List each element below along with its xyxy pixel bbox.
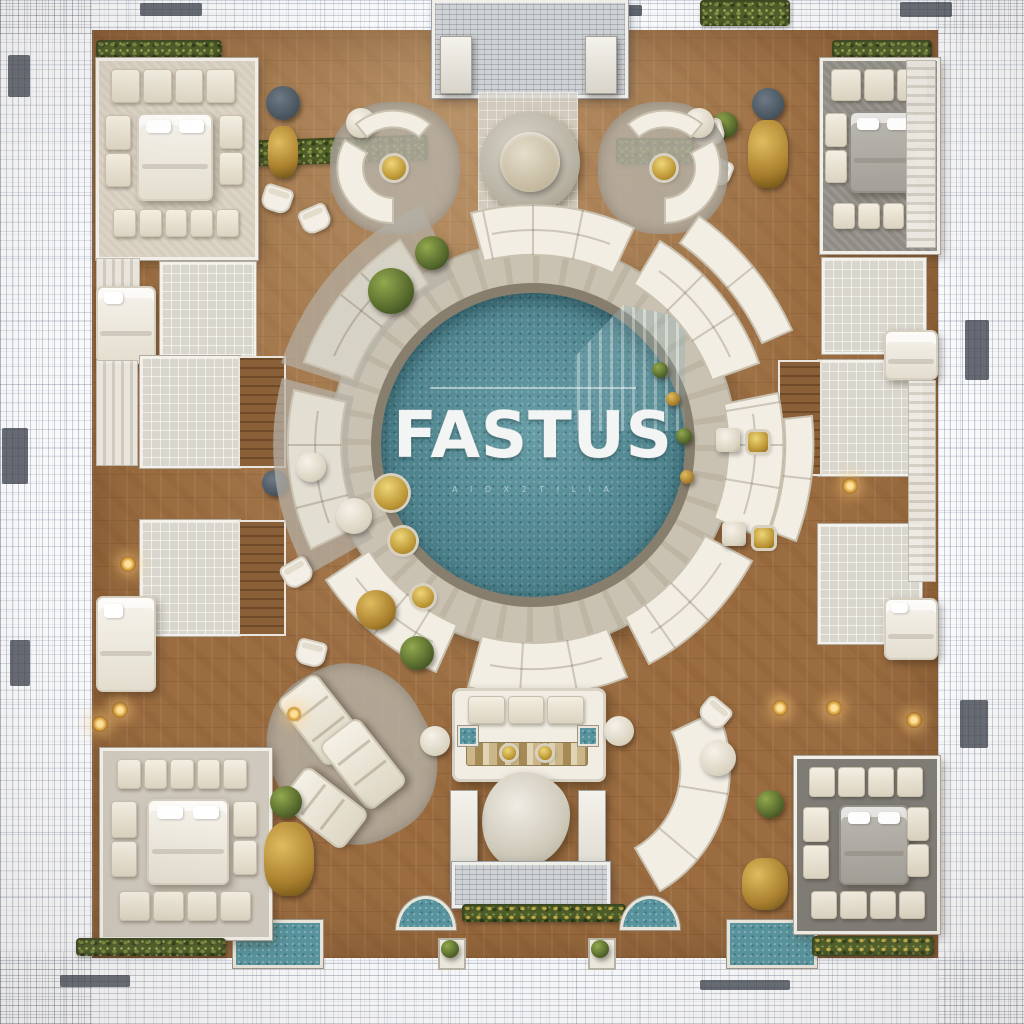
warm-lamp [826,700,842,716]
round-side-table [684,108,714,138]
sofa-row [111,69,235,103]
amber-plant [742,858,788,910]
sketch-mark [900,2,952,17]
planter-shrub [441,940,459,958]
sketch-mark [965,320,989,380]
round-side-table [604,716,634,746]
sofa-column [907,807,929,877]
gold-drink-tray [390,528,416,554]
ottoman [296,452,326,482]
portico-pillar [440,36,472,94]
bathroom-top-left [160,262,256,358]
sofa-row [113,209,239,237]
side-table-gold [748,432,768,452]
wall-paneling [96,360,138,466]
sketch-band-right [938,0,1024,1024]
rim-flower [652,362,668,378]
sketch-band-bottom [0,952,1024,1024]
sketch-band-left [0,0,92,1024]
round-side-table [346,108,376,138]
gold-drink-tray [374,476,408,510]
hedge-planter [832,40,932,58]
wall-paneling [908,380,936,582]
round-table [700,740,736,776]
warm-lamp [906,712,922,728]
sofa-row [811,891,925,919]
entrance-portico-bottom [452,862,610,908]
boxwood-shrub [270,786,302,818]
cluster-table-gold [652,156,676,180]
rim-flower [680,470,694,484]
portico-pillar [585,36,617,94]
round-side-table [420,726,450,756]
sofa-row [119,891,251,921]
side-table [722,522,746,546]
boxwood-shrub [368,268,414,314]
sketch-mark [140,3,202,16]
sketch-mark [10,640,30,686]
sofa-column [111,801,137,877]
console-band [466,742,588,766]
warm-lamp [92,716,108,732]
cluster-table-gold [382,156,406,180]
sofa-column [803,807,829,879]
closet-mid-left-2 [238,520,286,636]
mosaic-pool: FASTUS A I D X 2 T I L I A [371,283,695,607]
amber-plant [264,822,314,896]
edge-greenery [700,0,790,26]
sketch-mark [2,428,28,484]
planter-shrub [591,940,609,958]
sofa-row [809,767,923,797]
sofa-screen [458,726,478,746]
rim-flower [676,428,692,444]
sketch-mark [960,700,988,748]
hedge-planter [812,936,934,956]
sofa-row [117,759,247,789]
side-table [716,428,740,452]
closet-mid-right [778,360,822,476]
warm-lamp [120,556,136,572]
sofa-column [233,801,257,875]
gold-decor [502,746,516,760]
round-side-table [262,470,288,496]
boxwood-shrub [400,636,434,670]
amber-plant [748,120,788,188]
bed [884,598,938,660]
warm-lamp [112,702,128,718]
boxwood-shrub [756,790,784,818]
gold-drink-tray [412,586,434,608]
wall-paneling [906,60,936,248]
boxwood-shrub [415,236,449,270]
bathroom-mid-left-1 [140,356,240,468]
round-stone-table-top [500,132,560,192]
bed [96,286,156,364]
bed [839,805,909,885]
round-side-table [266,86,300,120]
sofa-column [825,113,847,183]
round-side-table [752,88,784,120]
pool-tagline: A I D X 2 T I L I A [381,485,685,494]
sketch-mark [8,55,30,97]
hedge-planter [96,40,222,58]
sofa-column [105,115,131,187]
sofa-column [219,115,243,185]
bed [137,113,213,201]
pool-divider-line [430,387,637,389]
bed [96,596,156,692]
sketch-mark [60,975,130,987]
rim-flower [666,392,680,406]
bed [884,330,938,380]
corner-suite-bottom-right [794,756,940,934]
closet-mid-left [238,356,286,468]
side-table-gold [754,528,774,548]
bed [147,799,229,885]
ottoman [336,498,372,534]
hedge-planter [76,938,226,956]
corner-suite-top-left [96,58,258,260]
sofa-set-cushions [468,696,584,724]
floor-plan-scene: FASTUS A I D X 2 T I L I A [0,0,1024,1024]
pool-title: FASTUS [381,399,685,473]
warm-lamp [286,706,302,722]
amber-plant [268,126,298,178]
warm-lamp [842,478,858,494]
sofa-screen [578,726,598,746]
amber-shrub [356,590,396,630]
corner-suite-bottom-left [100,748,272,940]
sketch-mark [700,980,790,990]
hedge-planter [462,904,626,922]
warm-lamp [772,700,788,716]
gold-decor [538,746,552,760]
